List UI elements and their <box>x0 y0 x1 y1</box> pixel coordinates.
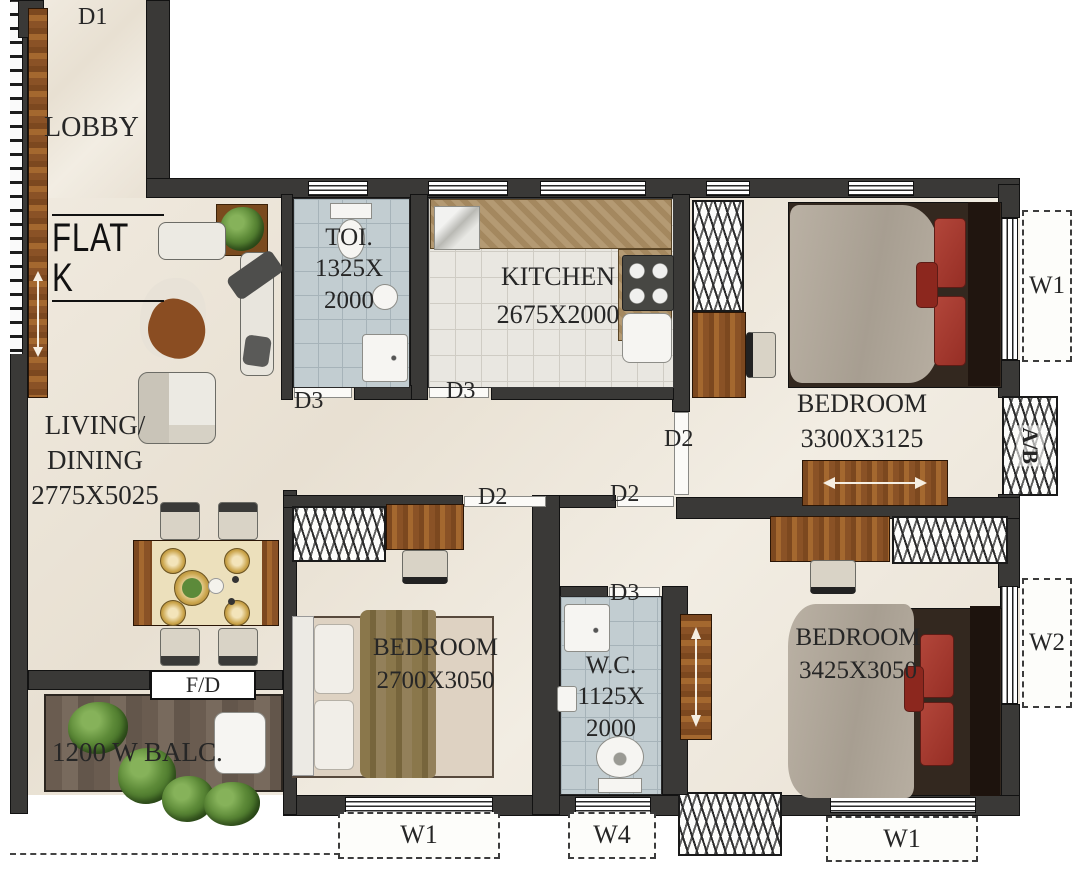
bedroom3-name: BEDROOM <box>778 622 938 655</box>
bedroom1-name: BEDROOM <box>782 386 942 421</box>
bedroom2-label: BEDROOM 2700X3050 <box>358 632 513 697</box>
toilet-kitchen-wall <box>410 194 428 400</box>
window-label: W4 <box>593 819 631 852</box>
wc-dim1: 1125X <box>562 681 660 712</box>
plate <box>224 548 250 574</box>
slider-door-fd: F/D <box>150 670 256 700</box>
window-w1-glazing <box>1000 218 1018 360</box>
bedroom2-wardrobe <box>292 506 386 562</box>
slide-arrow-icon <box>690 627 702 727</box>
door-label-d3-wc: D3 <box>610 578 639 608</box>
wc-label: W.C. 1125X 2000 <box>562 650 660 744</box>
wc-dim2: 2000 <box>562 713 660 744</box>
balcony-wall-left-seg <box>28 670 150 690</box>
plate <box>224 600 250 626</box>
living-dim: 2775X5025 <box>25 478 165 513</box>
flat-name: FLAT K <box>52 214 164 302</box>
bedroom1-headboard <box>968 202 1000 386</box>
shaft-label: A/B <box>1016 426 1044 467</box>
kitchen-name: KITCHEN <box>458 258 658 296</box>
bedroom2-chair <box>402 550 448 584</box>
small-bowl <box>208 578 224 594</box>
bedroom3-label: BEDROOM 3425X3050 <box>778 622 938 687</box>
plate <box>160 548 186 574</box>
wc-cistern <box>598 778 642 793</box>
balcony-plant-icon <box>204 782 260 826</box>
bedroom3-desk <box>770 516 890 562</box>
stair-grid <box>10 2 23 354</box>
living-dining-label: LIVING/ DINING 2775X5025 <box>25 408 165 513</box>
door-label-d3-kitchen: D3 <box>446 376 475 406</box>
door-label-d2-bedroom1: D2 <box>664 424 693 454</box>
kitchen-wall-right <box>672 194 690 412</box>
wc-name: W.C. <box>562 650 660 681</box>
window-w2-glazing <box>1000 586 1018 704</box>
toilet-dim1: 1325X <box>294 253 404 284</box>
toilet-wall-left <box>281 194 293 400</box>
door-label-d2-bedroom3: D2 <box>610 479 639 509</box>
vent-window <box>540 181 646 196</box>
kitchen-dim: 2675X2000 <box>458 296 658 334</box>
window-w2-right: W2 <box>1022 578 1072 708</box>
entry-cabinet <box>28 8 48 398</box>
shower-tray <box>362 334 408 382</box>
vent-window <box>848 181 914 196</box>
window-w1-bottom-left: W1 <box>338 812 500 859</box>
bedroom3-chair <box>810 560 856 594</box>
dining-chair <box>218 628 258 666</box>
serving-plate <box>174 570 210 606</box>
floor-plan: A/B <box>0 0 1074 870</box>
bedroom1-desk <box>692 312 746 398</box>
kitchen-label: KITCHEN 2675X2000 <box>458 258 658 333</box>
door-label-d1: D1 <box>78 2 107 32</box>
window-label: W1 <box>1029 270 1065 301</box>
bedroom1-pillow <box>934 218 966 288</box>
bedroom2-pillow <box>314 624 354 694</box>
lobby-wall-right <box>146 0 170 198</box>
window-w4-bottom: W4 <box>568 812 656 859</box>
bedroom2-dim: 2700X3050 <box>358 665 513 698</box>
plant-icon <box>220 207 264 251</box>
window-label: W1 <box>883 823 921 856</box>
bedroom3-cabinet <box>680 614 712 740</box>
flat-name-label: FLAT K <box>52 218 139 298</box>
kitchen-sink <box>434 206 480 250</box>
toilet-dim2: 2000 <box>294 285 404 316</box>
table-dot <box>228 598 235 605</box>
door-label-d3-toilet: D3 <box>294 386 323 416</box>
bedroom1-label: BEDROOM 3300X3125 <box>782 386 942 456</box>
dining-chair <box>160 502 200 540</box>
door-label-d2-bedroom2: D2 <box>478 482 507 512</box>
toilet-name: TOI. <box>294 222 404 253</box>
vent-window <box>308 181 368 196</box>
balcony-open-edge <box>10 853 340 855</box>
vent-window <box>706 181 750 196</box>
window-w4-glazing <box>575 797 651 813</box>
bedroom1-pillow <box>934 296 966 366</box>
lobby-label: LOBBY <box>44 110 139 145</box>
bedroom3-wardrobe <box>892 516 1008 564</box>
bedroom1-chair <box>746 332 776 378</box>
window-label: W1 <box>400 819 438 852</box>
plate <box>160 600 186 626</box>
bedroom3-pillow <box>920 702 954 766</box>
armchair-top <box>158 222 226 260</box>
bedroom2-headboard <box>292 616 314 776</box>
table-dot <box>232 576 239 583</box>
fd-label: F/D <box>186 671 220 699</box>
slide-arrow-icon <box>32 271 44 357</box>
dining-chair <box>160 628 200 666</box>
balcony-label: 1200 W BALC. <box>52 736 223 770</box>
bedroom2-pillow <box>314 700 354 770</box>
wc-shower-tray <box>564 604 610 652</box>
window-w1-bottom-right-glazing <box>830 797 976 813</box>
bedroom1-wardrobe <box>692 200 744 312</box>
bedroom1-dresser <box>802 460 948 506</box>
slide-arrow-icon <box>823 476 927 490</box>
sofa-pillow <box>242 334 272 367</box>
bedroom2-desk <box>386 504 464 550</box>
window-w1-top-right: W1 <box>1022 210 1072 362</box>
window-w1-bottom-right: W1 <box>826 816 978 862</box>
toilet-label: TOI. 1325X 2000 <box>294 222 404 316</box>
duct-box-bottom <box>678 792 782 856</box>
bedroom3-dim: 3425X3050 <box>778 655 938 688</box>
bedroom2-name: BEDROOM <box>358 632 513 665</box>
vent-window <box>428 181 508 196</box>
window-w1-bottom-glazing <box>345 797 493 813</box>
bedroom2-wall-right <box>532 495 560 815</box>
bedroom1-cushion <box>916 262 938 308</box>
window-label: W2 <box>1029 627 1065 658</box>
bedroom1-dim: 3300X3125 <box>782 421 942 456</box>
salad-bowl <box>182 578 202 598</box>
dining-chair <box>218 502 258 540</box>
bedroom3-headboard <box>970 606 1000 796</box>
living-name1: LIVING/ <box>25 408 165 443</box>
toilet-cistern <box>330 203 372 219</box>
living-name2: DINING <box>25 443 165 478</box>
shaft-duct: A/B <box>1002 396 1058 496</box>
